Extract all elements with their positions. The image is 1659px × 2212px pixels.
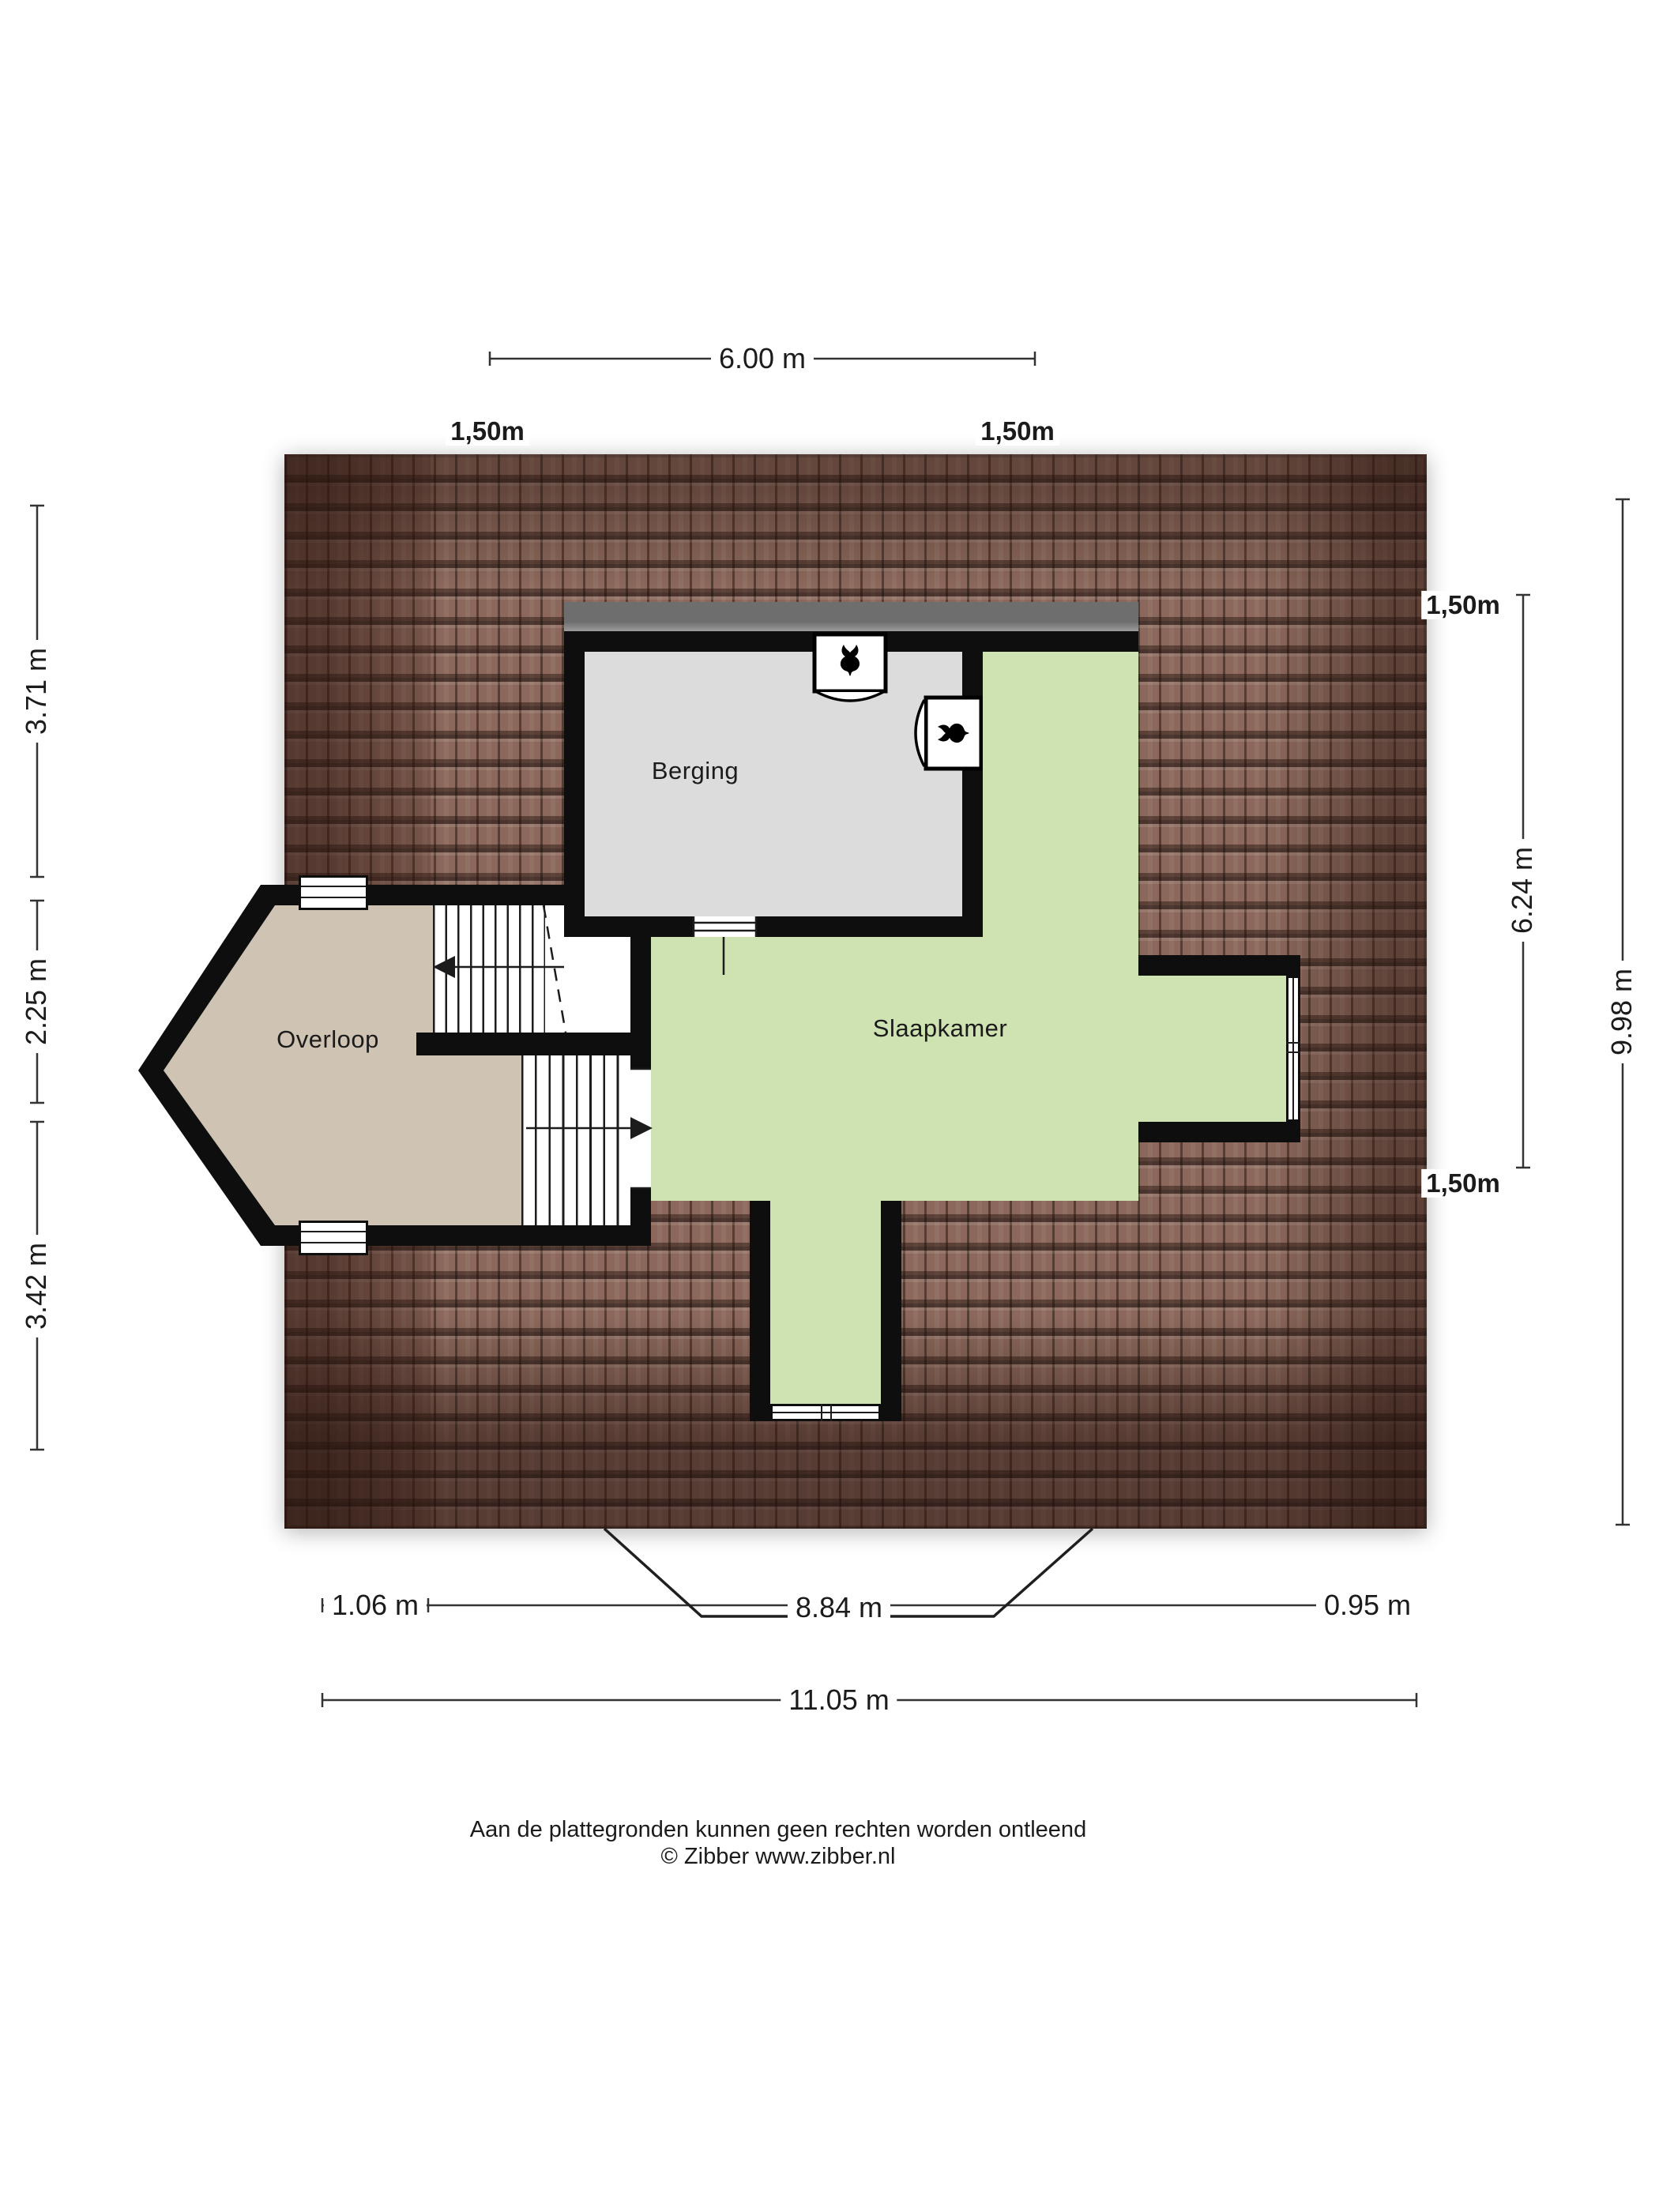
- dimension-bottom-left-overhang: 1.06 m: [324, 1589, 427, 1621]
- dimension-left-2: 2.25 m: [21, 950, 52, 1053]
- mechanical-ventilation-unit: [904, 695, 983, 771]
- dimension-top-width: 6.00 m: [711, 343, 814, 374]
- berging-wall-left: [564, 631, 585, 937]
- bottom-dormer-wall-right: [881, 1201, 901, 1421]
- mechanical-ventilation-unit: [812, 632, 888, 711]
- dimension-right-outer: 9.98 m: [1606, 961, 1638, 1063]
- flat-roof-band: [564, 602, 1138, 631]
- bottom-dormer-wall-left: [750, 1201, 770, 1421]
- room-label-overloop: Overloop: [276, 1025, 379, 1054]
- dimension-right-offset-top: 1,50m: [1421, 591, 1505, 619]
- overloop-bay-window-top: [299, 875, 368, 910]
- footer-disclaimer: Aan de plattegronden kunnen geen rechten…: [470, 1817, 1086, 1843]
- dimension-bottom-right-overhang: 0.95 m: [1316, 1589, 1419, 1621]
- staircase-upper-treads: [433, 905, 545, 1033]
- dimension-offset-top-left: 1,50m: [446, 417, 529, 446]
- dimension-bottom-total: 11.05 m: [781, 1684, 897, 1716]
- right-dormer-window: [1286, 976, 1300, 1122]
- berging-floor: [585, 652, 962, 916]
- staircase-lower-treads: [521, 1055, 630, 1225]
- dimension-offset-top-right: 1,50m: [976, 417, 1059, 446]
- staircase-lower: [521, 1055, 630, 1225]
- berging-wall-bottom: [564, 916, 983, 937]
- room-label-berging: Berging: [652, 757, 739, 785]
- berging-door-opening: [693, 916, 757, 937]
- dimension-right-inner: 6.24 m: [1507, 839, 1538, 942]
- room-label-slaapkamer: Slaapkamer: [873, 1014, 1007, 1043]
- dimension-bottom-wall-width: 8.84 m: [788, 1592, 890, 1623]
- right-dormer-wall-bottom: [1138, 1122, 1300, 1142]
- footer-copyright: © Zibber www.zibber.nl: [661, 1844, 896, 1870]
- berging-slaapkamer-divider-wall: [962, 631, 983, 937]
- slaapkamer-area-bottom-dormer: [770, 1201, 881, 1404]
- slaapkamer-area-right-dormer: [1138, 976, 1286, 1122]
- floorplan-page: { "plan": { "rooms": [ {"label": "Bergin…: [0, 0, 1659, 2212]
- dimension-right-offset-bottom: 1,50m: [1421, 1169, 1505, 1198]
- slaapkamer-area-main: [651, 905, 1138, 1201]
- overloop-door-opening: [630, 1068, 651, 1189]
- overloop-bay-window-bottom: [299, 1221, 368, 1255]
- stair-mid-wall: [416, 1033, 651, 1055]
- right-dormer-wall-top: [1138, 955, 1300, 976]
- dimension-left-1: 3.71 m: [21, 640, 52, 743]
- bottom-dormer-window: [770, 1404, 881, 1421]
- dimension-left-3: 3.42 m: [21, 1235, 52, 1337]
